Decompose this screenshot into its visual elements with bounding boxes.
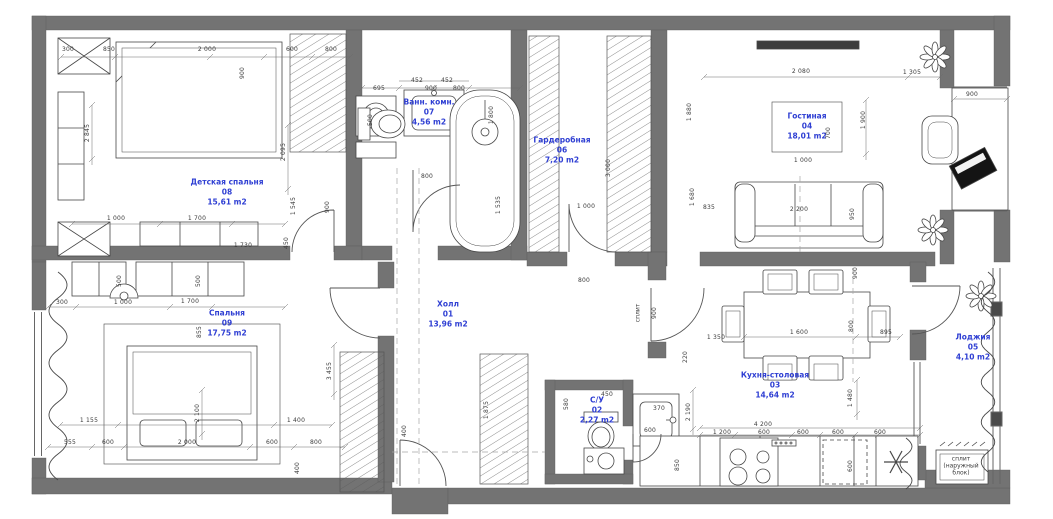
washer-wc (584, 448, 624, 474)
floor-plan-drawing (0, 0, 1053, 519)
tv-console (757, 41, 859, 49)
desk (922, 88, 1008, 210)
toilet-wc (584, 412, 618, 450)
bath-shelf (356, 142, 396, 158)
dining-table (722, 270, 890, 380)
dresser-master-2 (136, 262, 244, 296)
dresser-children (140, 222, 258, 246)
shelf-children (58, 92, 84, 200)
room-label-box (772, 102, 842, 152)
floor-plan: Детская спальня0815,61 m2Ванн. комн.074,… (0, 0, 1053, 519)
bed-master (127, 346, 257, 460)
toilet-bathroom (358, 108, 405, 140)
bed-children (116, 42, 282, 158)
sofa (735, 182, 883, 248)
bathtub (450, 90, 520, 252)
split-outdoor-unit (936, 442, 988, 484)
